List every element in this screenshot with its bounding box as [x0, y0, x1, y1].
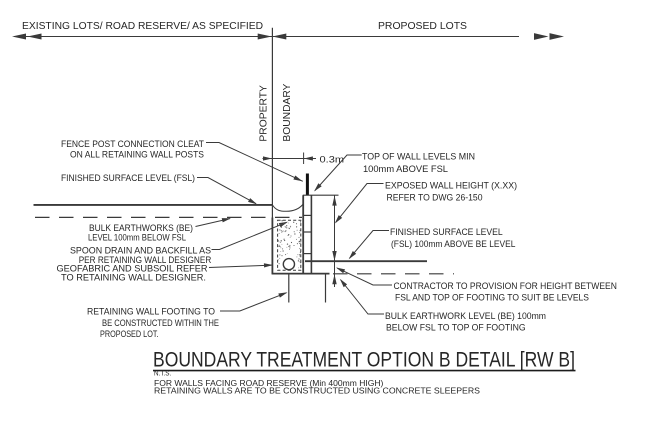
svg-text:PROPOSED LOT.: PROPOSED LOT.: [100, 329, 159, 340]
svg-text:BOUNDARY TREATMENT OPTION B DE: BOUNDARY TREATMENT OPTION B DETAIL [RW B…: [153, 349, 575, 372]
svg-text:TOP OF WALL LEVELS MIN: TOP OF WALL LEVELS MIN: [362, 152, 475, 163]
svg-text:FINISHED SURFACE LEVEL (FSL): FINISHED SURFACE LEVEL (FSL): [61, 173, 195, 184]
svg-text:(FSL) 100mm ABOVE BE LEVEL: (FSL) 100mm ABOVE BE LEVEL: [391, 239, 515, 250]
svg-text:BELOW FSL TO TOP OF FOOTING: BELOW FSL TO TOP OF FOOTING: [386, 323, 526, 334]
svg-text:PROPOSED LOTS: PROPOSED LOTS: [378, 21, 467, 32]
svg-text:100mm ABOVE FSL: 100mm ABOVE FSL: [363, 164, 448, 175]
svg-text:FINISHED SURFACE LEVEL: FINISHED SURFACE LEVEL: [390, 227, 503, 238]
svg-text:TO RETAINING WALL DESIGNER.: TO RETAINING WALL DESIGNER.: [61, 273, 206, 284]
svg-text:CONTRACTOR TO PROVISION FOR HE: CONTRACTOR TO PROVISION FOR HEIGHT BETWE…: [394, 281, 618, 292]
svg-text:BULK EARTHWORK LEVEL (BE) 100m: BULK EARTHWORK LEVEL (BE) 100mm: [385, 311, 546, 322]
svg-text:PROPERTY: PROPERTY: [258, 85, 270, 142]
svg-text:EXPOSED WALL HEIGHT (X.XX): EXPOSED WALL HEIGHT (X.XX): [385, 180, 517, 191]
svg-text:FSL AND TOP OF FOOTING TO SUIT: FSL AND TOP OF FOOTING TO SUIT BE LEVELS: [395, 293, 589, 304]
svg-text:RETAINING WALL FOOTING TO: RETAINING WALL FOOTING TO: [87, 307, 215, 318]
svg-text:EXISTING LOTS/ ROAD RESERVE/ A: EXISTING LOTS/ ROAD RESERVE/ AS SPECIFIE…: [22, 21, 263, 32]
svg-text:LEVEL 100mm BELOW FSL: LEVEL 100mm BELOW FSL: [88, 233, 186, 244]
svg-text:BOUNDARY: BOUNDARY: [281, 84, 293, 142]
svg-text:BE CONSTRUCTED WITHIN THE: BE CONSTRUCTED WITHIN THE: [102, 318, 219, 329]
svg-text:FENCE POST CONNECTION CLEAT: FENCE POST CONNECTION CLEAT: [61, 139, 204, 150]
svg-text:ON ALL RETAINING WALL POSTS: ON ALL RETAINING WALL POSTS: [70, 150, 204, 161]
svg-text:0.3m: 0.3m: [320, 155, 345, 166]
svg-text:REFER TO DWG 26-150: REFER TO DWG 26-150: [387, 193, 483, 204]
svg-text:RETAINING WALLS ARE TO BE CONS: RETAINING WALLS ARE TO BE CONSTRUCTED US…: [154, 385, 480, 395]
svg-text:N.T.S.: N.T.S.: [154, 369, 171, 378]
